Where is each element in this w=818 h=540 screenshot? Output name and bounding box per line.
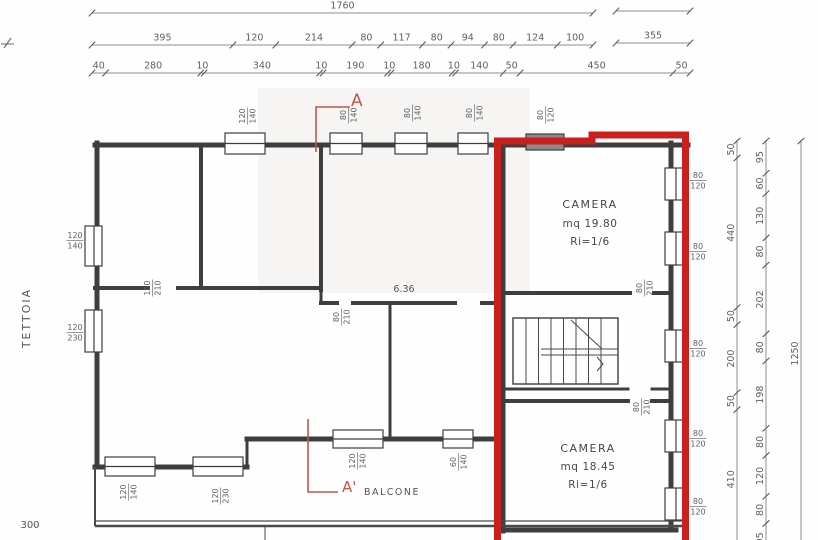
- floor-plan-canvas: A A' CAMERA mq 19.80 Ri=1/6 CAMERA mq 18…: [0, 0, 818, 540]
- tag-width: 100: [143, 280, 152, 295]
- dim-label: 40: [93, 61, 105, 72]
- floor-plan-scan: A A' CAMERA mq 19.80 Ri=1/6 CAMERA mq 18…: [0, 0, 818, 540]
- tag-height: 230: [222, 488, 231, 503]
- dim-label: 200: [726, 350, 737, 368]
- dim-label: 117: [392, 33, 410, 44]
- stair-treads: [526, 318, 601, 384]
- window-bottom-4: [443, 430, 473, 448]
- tag-height: 140: [476, 105, 485, 120]
- tag-height: 140: [130, 484, 139, 499]
- window-bottom-2: [193, 457, 243, 476]
- window-top-4: [458, 133, 488, 154]
- dim-label: 355: [644, 31, 662, 42]
- dim-label: 124: [526, 33, 544, 44]
- opening-size-tag: 80120: [690, 497, 707, 517]
- room2-area: mq 18.45: [560, 461, 615, 473]
- dim-label: 105: [755, 532, 766, 540]
- opening-size-tag: 120230: [67, 323, 84, 343]
- tag-height: 140: [67, 242, 82, 251]
- dim-label: 80: [755, 341, 766, 353]
- dim-label: 10: [448, 61, 460, 72]
- dim-label: 120: [755, 467, 766, 485]
- tag-width: 80: [693, 429, 703, 438]
- dim-label: 10: [383, 61, 395, 72]
- dim-label: 80: [360, 33, 372, 44]
- dim-label: 214: [305, 33, 323, 44]
- dim-label: 280: [144, 61, 162, 72]
- tag-height: 120: [690, 350, 705, 359]
- window-bottom-1: [105, 457, 155, 476]
- room2-name: CAMERA: [560, 442, 615, 455]
- dim-label: 10: [196, 61, 208, 72]
- dim-label: 50: [506, 61, 518, 72]
- opening-size-tag: 80120: [690, 429, 707, 449]
- dim-label: 190: [346, 61, 364, 72]
- tag-width: 60: [449, 457, 458, 467]
- tag-width: 80: [403, 108, 412, 118]
- interior-width-label: 6.36: [393, 284, 414, 295]
- stairwell-outline: [513, 318, 618, 384]
- dim-label: 340: [253, 61, 271, 72]
- tag-width: 120: [348, 453, 357, 468]
- tag-height: 210: [643, 399, 652, 414]
- dim-label: 198: [755, 386, 766, 404]
- dim-label: 450: [587, 61, 605, 72]
- dim-label: 50: [726, 143, 737, 155]
- scan-shadow: [258, 88, 530, 293]
- opening-size-tag: 80120: [690, 339, 707, 359]
- dim-label: 120: [245, 33, 263, 44]
- dim-label: 180: [413, 61, 431, 72]
- tag-height: 140: [249, 108, 258, 123]
- dim-label: 202: [755, 290, 766, 308]
- opening-size-tag: 80210: [332, 309, 352, 326]
- tag-height: 140: [359, 453, 368, 468]
- window-bottom-3: [333, 430, 383, 448]
- tag-height: 230: [67, 334, 82, 343]
- tag-width: 80: [693, 339, 703, 348]
- dim-label: 80: [755, 504, 766, 516]
- tag-height: 120: [690, 182, 705, 191]
- opening-size-tag: 60140: [449, 454, 469, 471]
- dim-label: 94: [462, 33, 474, 44]
- dim-label: 50: [726, 395, 737, 407]
- dim-col: 504405020050410: [726, 138, 740, 540]
- dim-col: 1250: [790, 138, 804, 540]
- room1-ratio: Ri=1/6: [570, 236, 610, 248]
- opening-size-tag: 120140: [238, 108, 258, 125]
- tettoia-label: TETTOIA: [20, 288, 33, 349]
- dim-label: 130: [755, 207, 766, 225]
- tag-height: 140: [350, 107, 359, 122]
- window-left-1: [85, 226, 102, 266]
- tag-width: 80: [635, 283, 644, 293]
- tag-height: 120: [690, 253, 705, 262]
- dim-label: 140: [470, 61, 488, 72]
- tag-height: 140: [460, 454, 469, 469]
- dim-label: 80: [755, 245, 766, 257]
- opening-size-tag: 120140: [119, 484, 139, 501]
- dim-label: 80: [755, 436, 766, 448]
- tag-width: 120: [67, 231, 82, 240]
- tag-width: 80: [339, 110, 348, 120]
- window-top-2: [330, 133, 362, 154]
- opening-size-tag: 80120: [690, 242, 707, 262]
- dim-label: 1760: [330, 1, 354, 12]
- dim-label: 80: [431, 33, 443, 44]
- stairs: [513, 318, 618, 384]
- section-label-a-prime: A': [342, 478, 356, 496]
- tag-width: 80: [536, 110, 545, 120]
- dim-row: 1760: [89, 1, 596, 17]
- ground-level-label: 300: [20, 520, 39, 531]
- window-top-1: [225, 133, 265, 154]
- tag-height: 210: [343, 309, 352, 324]
- room1-name: CAMERA: [562, 198, 617, 211]
- stair-rail: [541, 349, 618, 355]
- window-left-2: [85, 310, 102, 352]
- tag-width: 80: [693, 242, 703, 251]
- tag-width: 80: [332, 312, 341, 322]
- dim-label: 60: [755, 177, 766, 189]
- room2-ratio: Ri=1/6: [568, 479, 608, 491]
- tag-height: 120: [690, 508, 705, 517]
- dim-label: 395: [153, 33, 171, 44]
- tag-width: 120: [238, 108, 247, 123]
- dim-label: 440: [726, 224, 737, 242]
- tag-width: 120: [119, 484, 128, 499]
- tag-height: 120: [547, 107, 556, 122]
- tag-height: 210: [646, 280, 655, 295]
- dim-row: 355: [613, 31, 693, 47]
- tag-width: 80: [693, 497, 703, 506]
- stair-arrow: [597, 357, 603, 371]
- tag-width: 120: [211, 488, 220, 503]
- opening-size-tag: 100210: [143, 280, 163, 297]
- dim-label: 100: [566, 33, 584, 44]
- tag-height: 210: [154, 280, 163, 295]
- opening-size-tag: 120140: [348, 453, 368, 470]
- stray-ticks: [1, 38, 14, 48]
- dim-label: 1250: [790, 341, 801, 365]
- opening-size-tag: 80210: [635, 280, 655, 297]
- dim-col: 956013080202801988012080105: [755, 138, 769, 540]
- dim-label: 410: [726, 470, 737, 488]
- opening-size-tag: 120140: [67, 231, 84, 251]
- dim-label: 80: [493, 33, 505, 44]
- dim-row: 40280103401019010180101405045050: [89, 61, 693, 77]
- opening-size-tag: 80210: [632, 399, 652, 416]
- dim-label: 10: [315, 61, 327, 72]
- opening-size-tag: 120230: [211, 488, 231, 505]
- tag-width: 80: [632, 402, 641, 412]
- dim-label: 50: [726, 310, 737, 322]
- opening-size-tag: 80120: [690, 171, 707, 191]
- room1-area: mq 19.80: [562, 218, 617, 230]
- dim-label: 50: [675, 61, 687, 72]
- window-top-3: [395, 133, 427, 154]
- balcone-label: BALCONE: [364, 487, 420, 498]
- dim-label: 95: [755, 151, 766, 163]
- dim-row: 39512021480117809480124100: [89, 33, 596, 49]
- opening-size-tag: 80120: [536, 107, 556, 124]
- tag-height: 120: [690, 440, 705, 449]
- tag-width: 120: [67, 323, 82, 332]
- tag-width: 80: [465, 108, 474, 118]
- tag-height: 140: [414, 105, 423, 120]
- tag-width: 80: [693, 171, 703, 180]
- dim-row: [613, 8, 693, 15]
